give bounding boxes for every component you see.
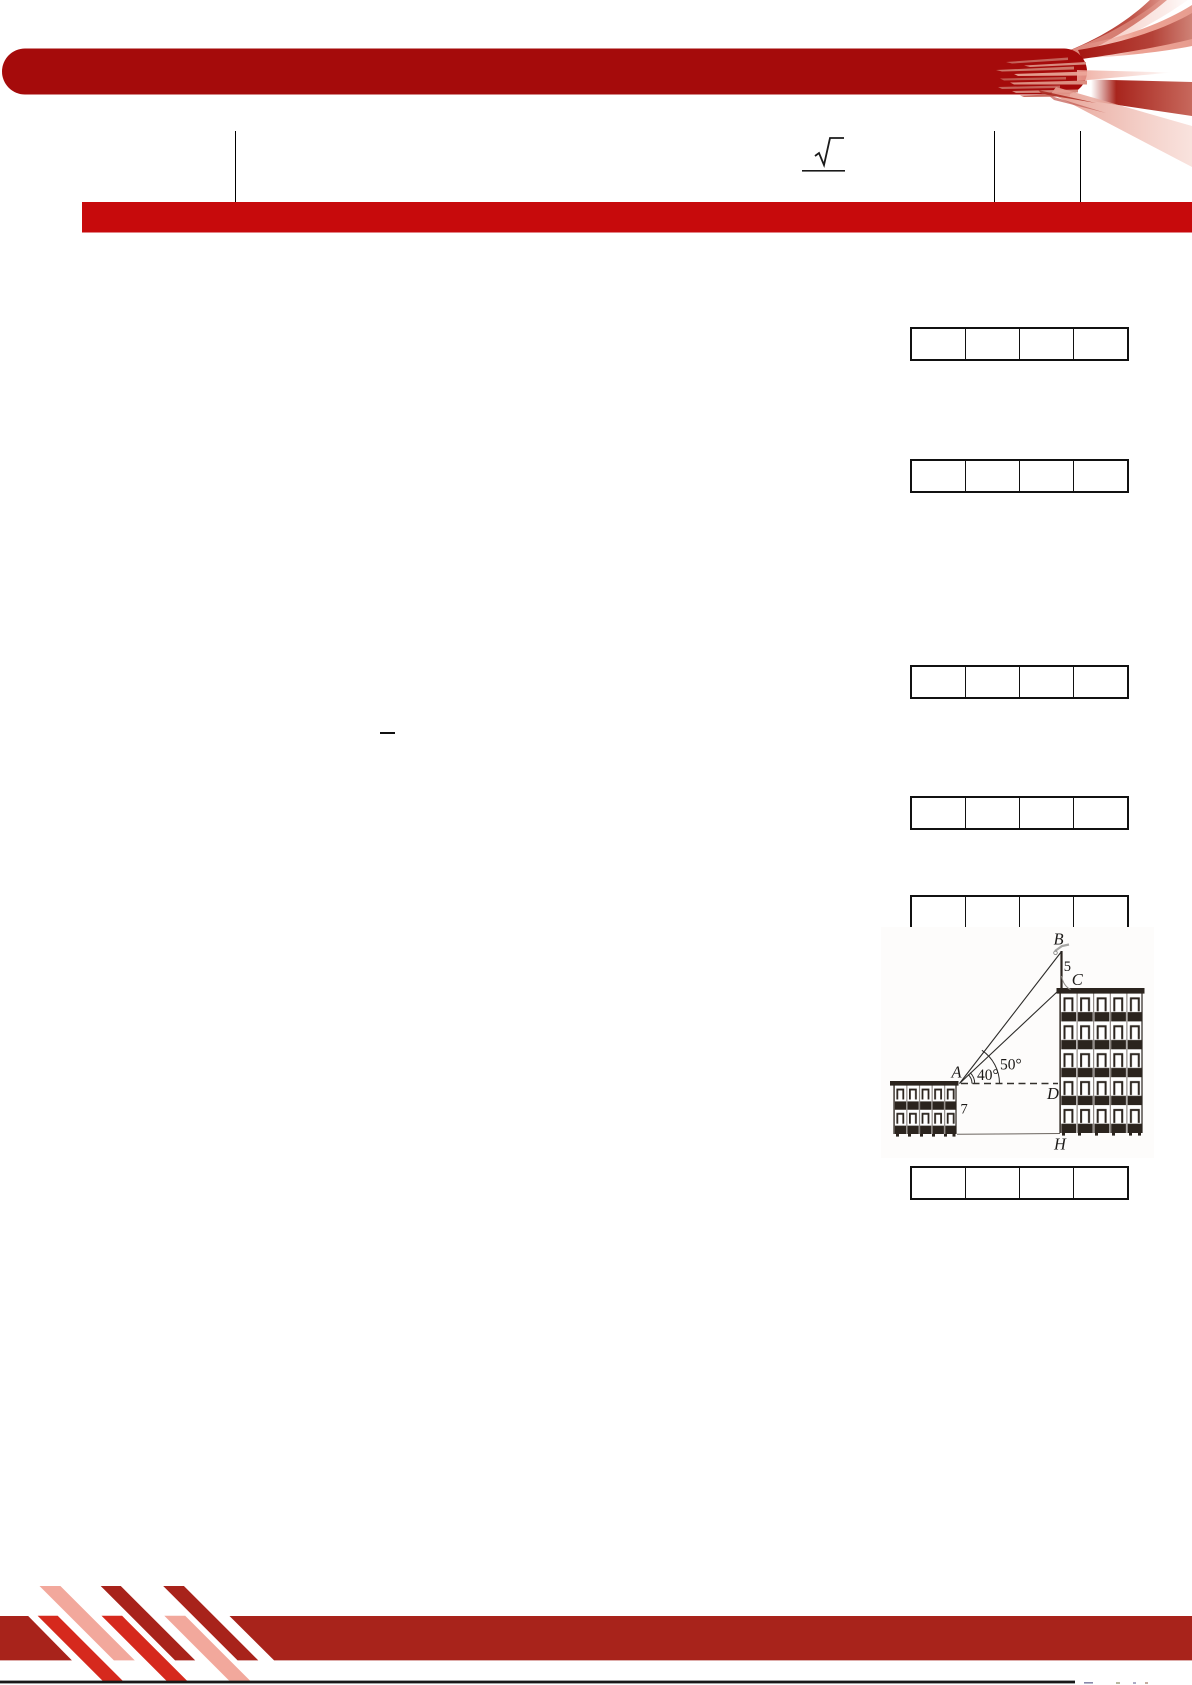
svg-text:C: C — [1072, 970, 1084, 989]
svg-text:50°: 50° — [1000, 1057, 1022, 1074]
svg-text:B: B — [1054, 930, 1064, 949]
svg-text:A: A — [951, 1063, 963, 1082]
svg-text:H: H — [1053, 1135, 1067, 1154]
svg-text:D: D — [1046, 1084, 1059, 1103]
svg-text:40°: 40° — [977, 1067, 999, 1084]
svg-text:5: 5 — [1064, 959, 1071, 975]
svg-text:7: 7 — [961, 1102, 968, 1118]
